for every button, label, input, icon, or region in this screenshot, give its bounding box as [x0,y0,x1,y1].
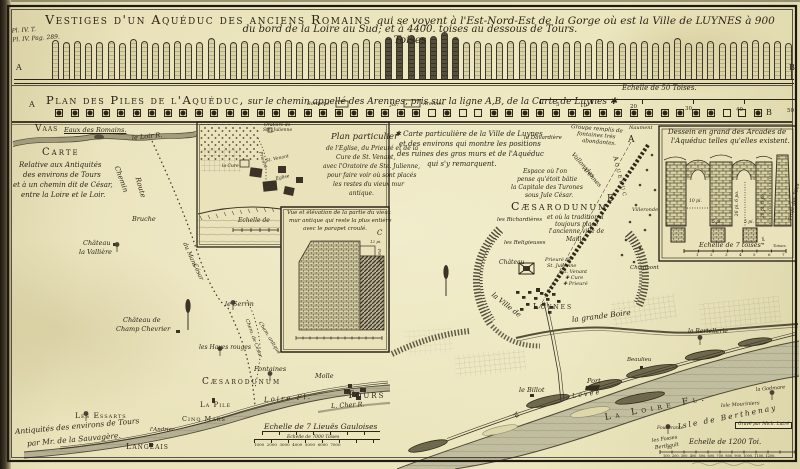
aqueduct-pile [563,42,570,79]
pile-plan-square [474,109,482,117]
margin-handwriting [692,463,764,466]
aqueduct-pile [530,42,537,79]
aqueduct-pile [152,43,159,79]
pile-plan-square [552,109,560,117]
panel-label: Dessein en grand des Arcades de [668,129,786,136]
inset-plan-label: antique. [349,191,374,197]
map-label: des environs de Tours [23,172,101,179]
plan-heading: Plan des Piles de l'Aquéduc, sur le chem… [46,89,617,108]
plan-band-label: Echelle de 50 Toises. [622,85,697,92]
aqueduct-pile [496,42,503,79]
ravine-south [492,326,540,346]
panel-label: 4 pi. [761,236,765,245]
panel-label: 5 pi. [712,221,722,226]
elevation-endpoint-label: A [16,64,22,72]
map-label: Eaux des Romains. [64,127,126,134]
pile-plan-square [241,109,249,117]
panel-label: 28 pi. 6 po. [762,193,767,219]
aqueduct-pile [185,43,192,79]
panel-label: 3 [725,253,728,257]
plan-band-label: 50 [787,109,794,115]
pile-plan-square [536,109,544,117]
pier-plan-square [711,228,725,242]
pile-plan-square [661,109,669,117]
pile-plan-square [335,109,343,117]
panel-label: l'Aquéduc telles qu'elles existent. [671,138,790,145]
map-label: le Serrin [225,301,254,308]
map-label: Maillé. [566,237,587,243]
map-label: Tours [347,391,385,401]
grande-boire-channel [516,324,798,338]
map-label: l'ancienne ville de [549,229,604,235]
aqueduct-pile [85,43,92,79]
luynes-port-avenue [544,302,561,402]
pile-plan-square [148,109,156,117]
pile-plan-square [692,109,700,117]
pile-plan-square [583,109,591,117]
map-label: sous Jule César. [525,193,573,199]
pile-plan-square [381,109,389,117]
map-label: Carte [42,148,80,158]
panel-label: 5 pi. [744,221,754,226]
map-label: Château [83,240,111,247]
aqueduct-pile [619,43,626,79]
plan-band-label: 30 [685,107,692,113]
inset-wall-label: C [377,230,382,237]
pile-plan-square [397,109,405,117]
pile-plan-square [117,109,125,117]
map-label: la Davardière [524,136,562,142]
plan-band-label: 5 [556,103,560,109]
map-label: Champ Chevrier [116,326,170,333]
map-label: le Billot [519,387,545,394]
pile-plan-square [257,109,265,117]
pile-plan-square [723,109,731,117]
inset-plan-label: les restes du vieux mur [333,182,404,188]
pile-plan-square [164,109,172,117]
aqueduct-pile [663,42,670,79]
plan-band-label: A [29,101,35,109]
map-label: Château de [123,317,161,324]
aqueduct-pile [763,42,770,79]
plan-band-label: B [766,109,772,117]
pile-plan-square [86,109,94,117]
pile-plan-square [102,109,110,117]
pile-plan-square [350,109,358,117]
aqueduct-pile [463,42,470,79]
map-label: 50 [667,446,672,450]
pile-plan-square [599,109,607,117]
plan-band-label: 20 [630,105,637,111]
pile-plan-square [428,109,436,117]
map-label: Echelle de 7000 Toises [287,436,339,441]
pile-plan-square [505,109,513,117]
sheet-title-line2: du bord de la Loire au Sud; et à 4400. t… [190,24,630,35]
map-label: Espace où l'on [523,169,567,175]
map-label: Naument [629,126,653,131]
map-label: qui s'y remarquent. [427,161,496,168]
pile-plan-square [195,109,203,117]
pile-plan-square [288,109,296,117]
pile-plan-square [366,109,374,117]
aqueduct-pile [219,43,226,79]
map-label: Bruche [132,216,156,223]
aqueduct-pile [785,43,792,79]
panel-label: Echelle de 7 toises [699,242,761,249]
map-label: Vaas [35,125,58,134]
pile-plan-square [55,109,63,117]
inset-plan-label: Plan particulier [331,133,398,142]
map-label: Luynes [533,303,573,311]
plan-band-label: 10 [580,104,587,110]
map-label: la Capitale des Turones [511,185,583,191]
aqueduct-pile [719,43,726,79]
inset-wall-label: 12 pi. [370,240,381,244]
inset-plan-label: la Cure [222,165,239,170]
pile-plan-square [754,109,762,117]
map-label: Villeronde [632,208,658,213]
pile-plan-row [55,109,762,117]
pile-plan-square [272,109,280,117]
pile-plan-square [645,109,653,117]
pile-plan-square [226,109,234,117]
aqueduct-pile [163,42,170,79]
map-label: Echelle de 7 Lieuës Gauloises [264,423,377,431]
pier-plan-square [671,228,685,242]
engraved-map-sheet: Pl. IV. T. Pl. IV. Pag. 289. Vestiges d'… [0,0,800,469]
inset-wall-label: Vue et élévation de la partie du vieux [287,211,391,217]
map-label: ✱ Carte particulière de la Ville de Luyn… [395,131,543,138]
map-label: Fouderante [657,427,683,432]
antique-wall-bricks [299,241,360,330]
map-label: ✚ Prieuré [563,282,588,287]
map-label: Château [499,260,524,266]
plan-band-label: 40 [736,108,743,114]
panel-label: 1 [696,253,699,257]
map-label: Gravé par Mich. Lutré [735,422,792,429]
map-label: la Bertellerie [688,329,728,335]
aqueduct-pile [630,42,637,79]
map-label: entre la Loire et le Loir. [21,192,105,199]
map-label: les Religieuses [504,241,545,247]
map-label: La Pile [200,402,231,409]
map-label: pense qu'étoit bâtie [517,177,577,183]
pile-plan-square [459,109,467,117]
map-label: Cæsarodunum [511,201,608,212]
aqueduct-pile [685,43,692,79]
map-label: Fontaines [254,366,286,373]
aqueduct-pile [319,43,326,79]
aqueduct-pile [696,42,703,79]
pier-plan-square [743,228,757,242]
map-label: Port [587,378,601,385]
inset-wall-label: mur antique qui reste la plus entière [289,219,392,225]
elevation-endpoint-label: B [789,64,795,72]
map-label: Chaumont [630,266,659,272]
panel-label: 4 [739,253,742,257]
aqueduct-pier [666,162,686,226]
map-label: Molle [315,373,334,380]
pile-plan-square [71,109,79,117]
aqueduct-pier [710,162,732,226]
wall-hatched-face [360,256,384,330]
map-label: l'Andrier [150,428,175,434]
inset-wall-label: Parapet [377,249,382,265]
pile-plan-square [490,109,498,117]
pile-plan-square [319,109,327,117]
plan-band-label: Jar. [390,103,398,108]
panel-label: 10 pi. [689,200,702,205]
map-label: Beaulieu [627,358,651,364]
plan-band-label: Borderie [307,102,329,107]
aqueduct-pile [119,43,126,79]
pile-plan-square [443,109,451,117]
aqueduct-pile [252,43,259,79]
map-label: Langeais [126,443,169,451]
map-label: les Richardières [497,218,542,224]
aqueduct-pile [585,43,592,79]
inset-wall-label: avec le parapet croulé. [303,227,367,233]
map-label: des ruines des gros murs et de l'Aquéduc [397,151,544,158]
aqueduct-pile [263,42,270,79]
panel-label: 2 [710,253,713,257]
aqueduct-pile [63,42,70,79]
plan-band-label: Arennes [423,102,444,107]
pile-plan-square [179,109,187,117]
pile-plan-square [133,109,141,117]
aqueduct-pile [485,43,492,79]
map-label: la Vallière [79,249,112,256]
pile-plan-square [614,109,622,117]
aqueduct-pile [730,42,737,79]
map-label: Echelle de 1200 Toi. [689,439,761,446]
inset-plan-label: Cure de St. Venant, [336,155,395,161]
aqueduct-pile [652,43,659,79]
map-label: 1000 2000 3000 4000 5000 6000 7000 [254,443,341,447]
map-label: 100. 200. 300. 400. 500. 600. 700. 800. … [663,455,775,459]
map-label: Cæsarodunum [202,378,281,387]
inset-plan-label: pour faire voir où sont placés [327,173,416,179]
map-label: Cinq Mars [182,416,226,423]
aqueduct-pile [552,43,559,79]
panel-label: 26 pi. 6 po. [736,191,741,217]
aqueduct-pile [330,42,337,79]
aqueduct-pile [230,42,237,79]
pile-plan-square [412,109,420,117]
map-label: et des environs qui montre les positions [399,141,541,148]
map-label: Relative aux Antiquités [19,162,101,169]
inset-plan-label: Ste. Julienne [263,129,292,134]
map-label: A [628,136,635,145]
map-label: et à un chemin dit de César, [13,182,113,189]
map-label: les Hayes rouges [199,345,251,351]
pile-plan-square [210,109,218,117]
pile-plan-square [568,109,576,117]
panel-label: 7 [782,253,785,257]
aqueduct-pile [296,42,303,79]
inset-plan-label: Echelle de [238,218,270,224]
pile-plan-square [521,109,529,117]
pile-plan-square [676,109,684,117]
map-label: L. Cher R. [331,401,365,409]
panel-label: 6 [768,253,771,257]
billot-mark [530,394,534,397]
pile-plan-square [304,109,312,117]
aqueduct-pile [352,43,359,79]
aqueduct-pile [196,42,203,79]
panel-label: 5 [753,253,756,257]
aqueduct-pile [96,42,103,79]
inset-plan-label: avec l'Oratoire de Ste. Julienne, [323,164,420,170]
panel-label: Toises. [773,244,787,248]
plan-heading-caps: Plan des Piles de l'Aquéduc, [46,93,245,107]
pile-plan-square [707,109,715,117]
